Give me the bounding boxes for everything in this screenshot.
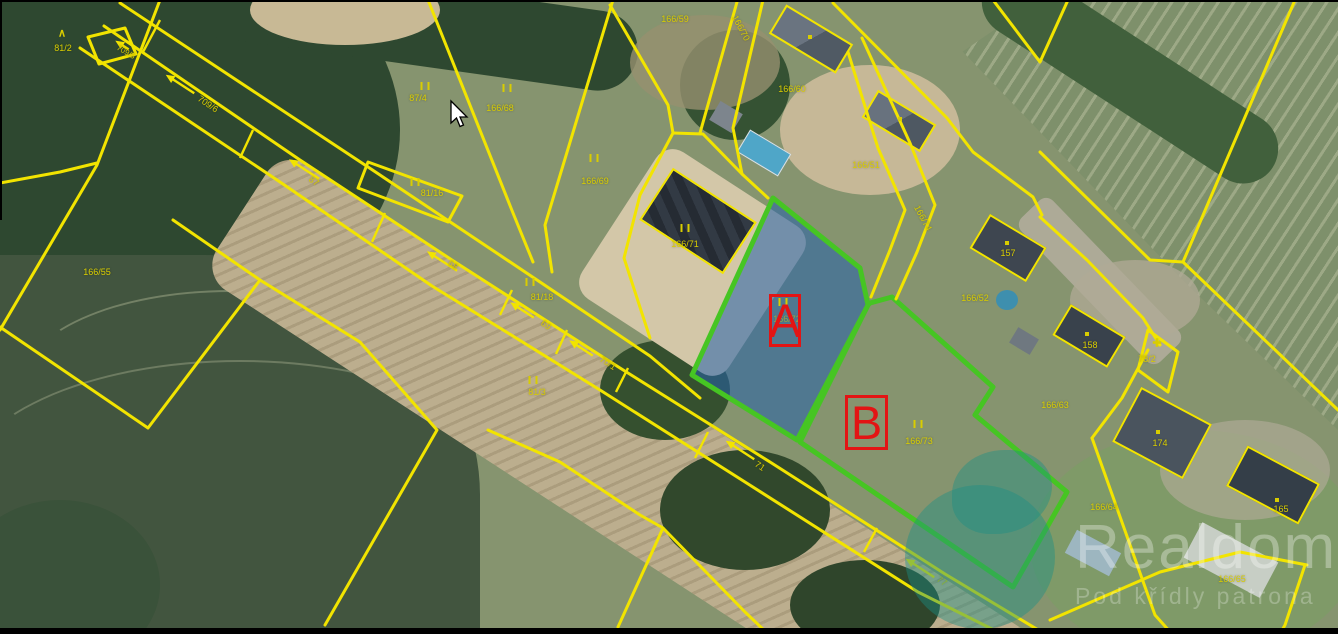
meadow-blotch: [630, 15, 780, 110]
parcel-label-81-18: 81/18: [531, 292, 554, 302]
grassland-icon: [914, 420, 923, 428]
parcel-b-marker: B: [845, 395, 888, 450]
parcel-label-166-73: 166/73: [905, 436, 933, 446]
grassland-icon: [526, 278, 535, 286]
parcel-b-letter: B: [851, 399, 882, 446]
frame-top: [0, 0, 1338, 2]
parcel-a-marker: A: [769, 294, 801, 347]
parcel-label-81-16: 81/16: [421, 188, 444, 198]
trees-2: [660, 450, 830, 570]
sand-16671: [571, 141, 813, 383]
watermark-slogan: Pod křídly patrona: [1075, 583, 1316, 610]
parcel-label-166-68: 166/68: [486, 103, 514, 113]
parcel-label-87-4: 87/4: [409, 93, 427, 103]
watermark-brand: Realdomus: [1075, 512, 1338, 583]
grassland-icon: [421, 82, 430, 90]
parcel-label-166-52: 166/52: [961, 293, 989, 303]
parcel-a-letter: A: [769, 297, 800, 344]
grassland-icon: [503, 84, 512, 92]
pool-round: [996, 290, 1018, 310]
parcel-label-166-63: 166/63: [1041, 400, 1069, 410]
frame-bottom: [0, 628, 1338, 634]
frame-left: [0, 0, 2, 220]
grassland-icon: [590, 154, 599, 162]
cadastral-map-view[interactable]: 709/5709/687686970/17177166/70166/7481/2…: [0, 0, 1338, 634]
parcel-label-166-69: 166/69: [581, 176, 609, 186]
shed-2: [1009, 327, 1039, 355]
grassland-icon: [411, 178, 420, 186]
parcel-label-166-74: 166/74: [912, 203, 934, 232]
